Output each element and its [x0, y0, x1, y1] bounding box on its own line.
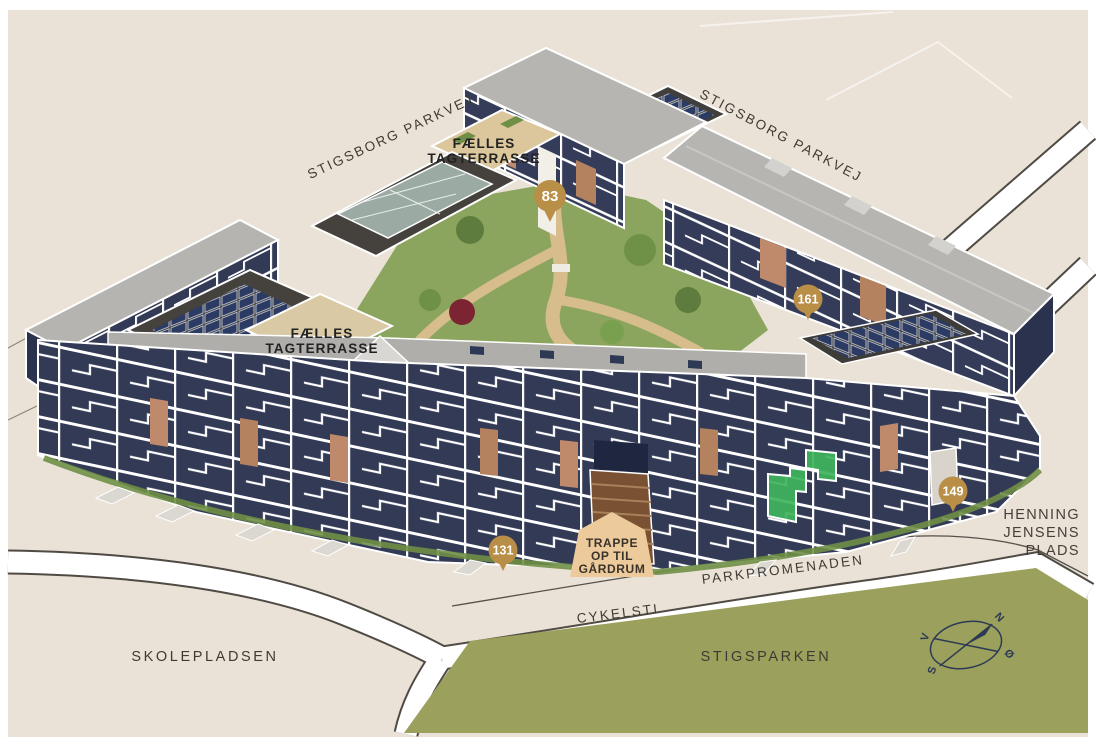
badge-83-value: 83 [542, 188, 559, 205]
henning-line3: PLADS [1025, 543, 1080, 559]
henning-line2: JENSENS [1003, 525, 1080, 541]
area-skolepladsen: SKOLEPLADSEN [131, 649, 278, 665]
badge-161-value: 161 [798, 293, 819, 307]
henning-line1: HENNING [1003, 507, 1080, 523]
terrace-west-line1: FÆLLES [291, 326, 354, 341]
red-tree [449, 299, 475, 325]
stairs-label-line3: GÅRDRUM [579, 561, 646, 576]
site-map: TRAPPE OP TIL GÅRDRUM FÆLLES TAGTERRASSE… [0, 0, 1096, 745]
stairs-label-line2: OP TIL [591, 549, 633, 563]
terrace-north-line1: FÆLLES [453, 136, 516, 151]
terrace-west-line2: TAGTERRASSE [265, 341, 378, 356]
site-map-svg: TRAPPE OP TIL GÅRDRUM FÆLLES TAGTERRASSE… [0, 0, 1096, 745]
courtyard-bench [552, 264, 570, 272]
badge-149-value: 149 [943, 485, 964, 499]
stairs-label-line1: TRAPPE [586, 536, 638, 550]
area-stigsparken: STIGSPARKEN [701, 649, 832, 665]
badge-131-value: 131 [493, 544, 514, 558]
terrace-north-line2: TAGTERRASSE [427, 151, 540, 166]
